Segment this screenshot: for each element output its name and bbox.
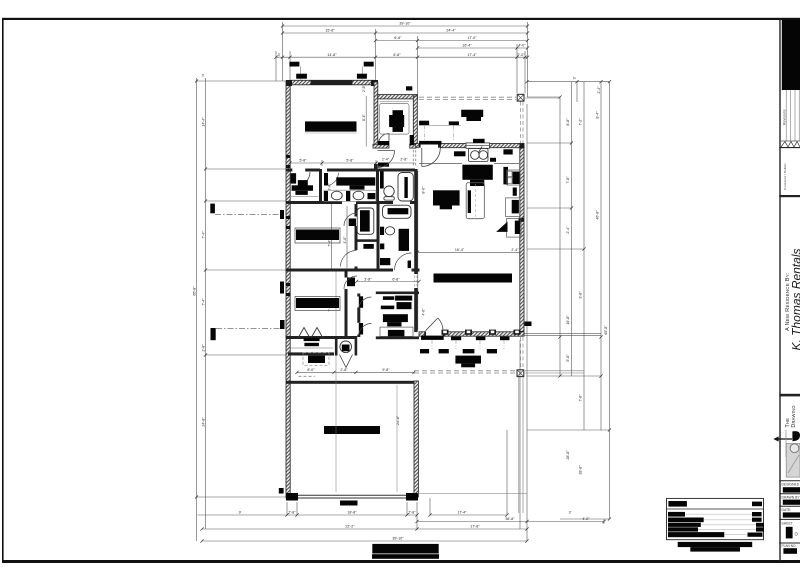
svg-text:39'-10": 39'-10"	[392, 537, 404, 541]
svg-text:2'-4": 2'-4"	[382, 158, 390, 162]
svg-text:46'-8": 46'-8"	[596, 210, 600, 220]
svg-text:8'-8": 8'-8"	[566, 118, 570, 126]
svg-text:36'-8": 36'-8"	[505, 517, 515, 521]
svg-text:8'-4": 8'-4"	[596, 111, 600, 119]
svg-text:28'-8": 28'-8"	[566, 450, 570, 460]
svg-text:9'-8": 9'-8"	[382, 368, 390, 372]
svg-text:2'-8": 2'-8"	[362, 84, 366, 92]
svg-text:7'-8": 7'-8"	[579, 394, 583, 402]
svg-text:2'-4": 2'-4"	[566, 226, 570, 234]
svg-text:16'-4": 16'-4"	[455, 248, 465, 252]
svg-text:5'-8": 5'-8"	[299, 158, 307, 162]
svg-text:2'-8": 2'-8"	[202, 344, 206, 352]
svg-text:17'-8": 17'-8"	[470, 525, 480, 529]
svg-text:3': 3'	[202, 74, 205, 78]
svg-text:3': 3'	[278, 53, 281, 57]
svg-text:14'-4": 14'-4"	[202, 117, 206, 127]
svg-text:4'-0": 4'-0"	[582, 517, 590, 521]
svg-text:14'-8": 14'-8"	[327, 53, 337, 57]
svg-text:7'-4": 7'-4"	[202, 231, 206, 239]
svg-text:PLAN NO.: PLAN NO.	[782, 544, 797, 548]
svg-text:65'-8": 65'-8"	[604, 325, 608, 335]
svg-text:7'-4": 7'-4"	[202, 298, 206, 306]
svg-text:9': 9'	[239, 511, 242, 515]
svg-text:2'-4": 2'-4"	[597, 86, 601, 94]
svg-text:5'-8": 5'-8"	[566, 354, 570, 362]
svg-text:4'-6": 4'-6"	[421, 308, 425, 316]
svg-text:8'-4": 8'-4"	[362, 113, 366, 121]
svg-text:6'-8": 6'-8"	[394, 36, 402, 40]
svg-text:3'-8": 3'-8"	[364, 277, 372, 281]
svg-text:24'-4": 24'-4"	[446, 29, 456, 33]
svg-text:2'-8": 2'-8"	[408, 511, 416, 515]
svg-text:2'-0": 2'-0"	[517, 53, 525, 57]
svg-text:5'-8": 5'-8"	[346, 158, 354, 162]
svg-text:4'-0": 4'-0"	[343, 236, 347, 244]
svg-text:17'-4": 17'-4"	[457, 511, 467, 515]
svg-text:3': 3'	[569, 511, 572, 515]
svg-text:65'-8": 65'-8"	[193, 286, 197, 296]
svg-text:2'-8": 2'-8"	[340, 368, 348, 372]
svg-text:16'-4": 16'-4"	[462, 44, 472, 48]
svg-text:4'-0": 4'-0"	[518, 44, 526, 48]
svg-text:28'-8": 28'-8"	[579, 465, 583, 475]
svg-text:SHEET: SHEET	[782, 521, 793, 525]
svg-text:2'-8": 2'-8"	[400, 158, 408, 162]
svg-text:7'-8": 7'-8"	[566, 176, 570, 184]
svg-text:39'-10": 39'-10"	[399, 22, 411, 26]
svg-text:8'-0": 8'-0"	[307, 368, 315, 372]
svg-text:3': 3'	[573, 76, 577, 79]
svg-text:15'-6": 15'-6"	[325, 29, 335, 33]
svg-text:Revisions: Revisions	[783, 109, 787, 125]
svg-text:O: O	[795, 531, 799, 536]
svg-text:17'-4": 17'-4"	[467, 53, 477, 57]
svg-text:K. Thomas Rentals: K. Thomas Rentals	[789, 248, 800, 350]
svg-text:DESIGNED: DESIGNED	[782, 483, 800, 487]
svg-text:2'-8": 2'-8"	[288, 511, 296, 515]
svg-text:17'-0": 17'-0"	[467, 36, 477, 40]
svg-text:3'-8": 3'-8"	[579, 291, 583, 299]
svg-text:DRAWN BY: DRAWN BY	[782, 495, 800, 499]
svg-text:6'-8": 6'-8"	[392, 277, 400, 281]
svg-text:24'-8": 24'-8"	[202, 417, 206, 427]
svg-text:6'-8": 6'-8"	[393, 53, 401, 57]
svg-text:22'-2": 22'-2"	[345, 525, 355, 529]
svg-text:Contractor / Builder: Contractor / Builder	[783, 163, 787, 190]
svg-text:8'-0": 8'-0"	[421, 186, 425, 194]
svg-text:24'-8": 24'-8"	[396, 415, 400, 425]
svg-text:18'-8": 18'-8"	[347, 511, 357, 515]
svg-text:2'-4": 2'-4"	[511, 248, 519, 252]
svg-text:16'-8": 16'-8"	[566, 315, 570, 325]
svg-text:7'-2": 7'-2"	[579, 118, 583, 126]
svg-text:DATE:: DATE:	[782, 508, 792, 512]
